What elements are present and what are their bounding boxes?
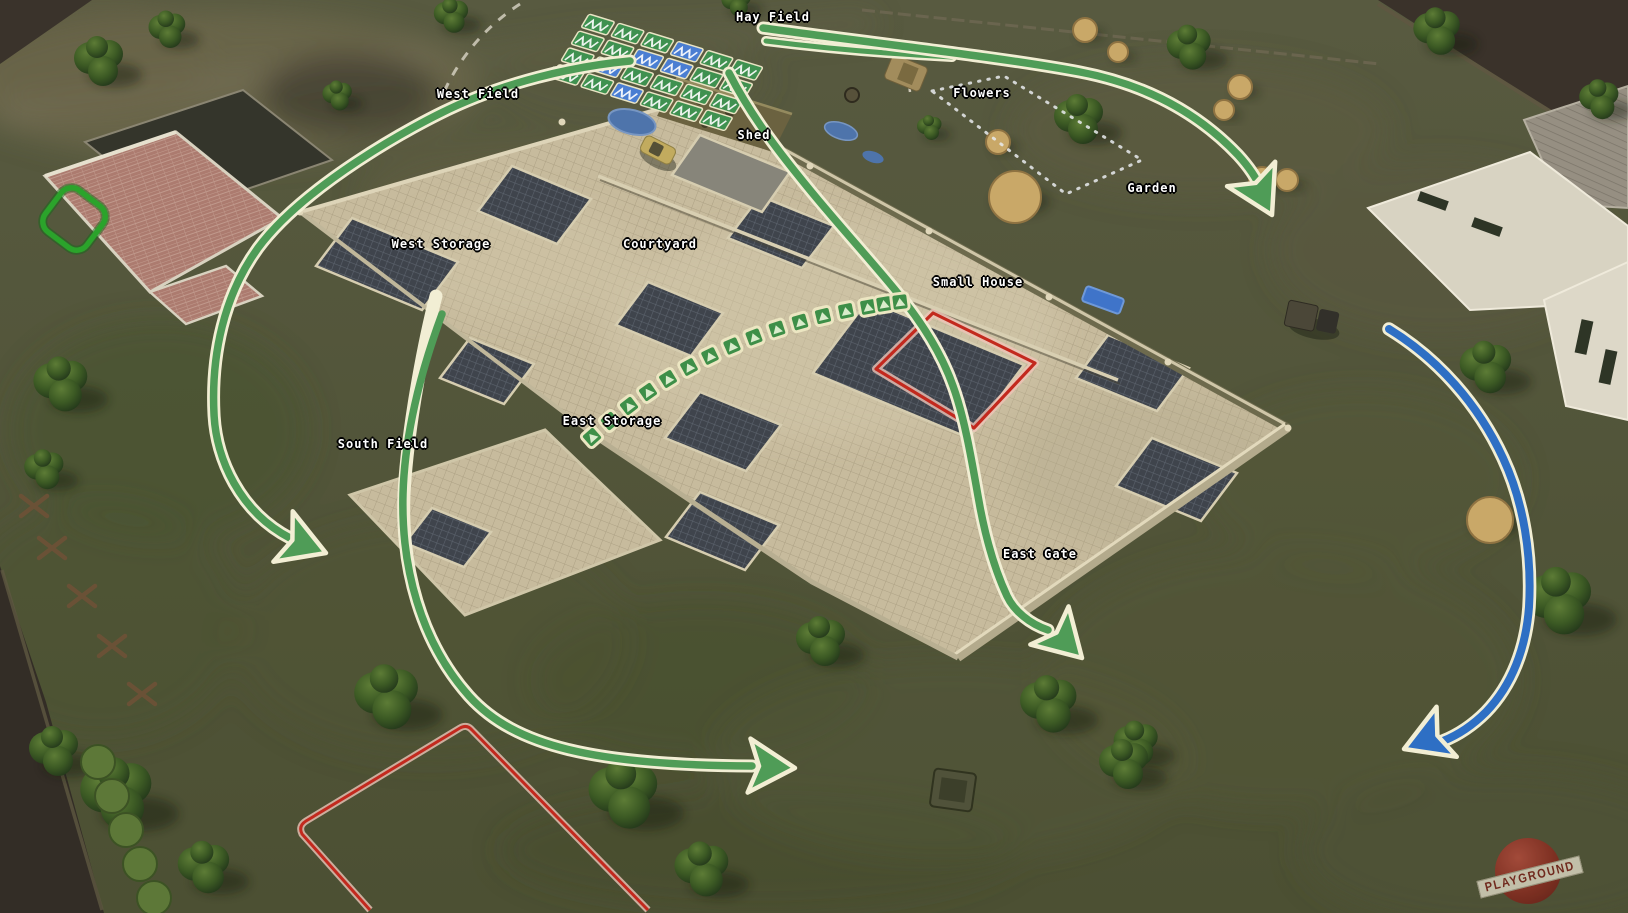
well <box>845 88 859 102</box>
map-scene <box>0 0 1628 913</box>
map-canvas[interactable]: Hay FieldWest FieldFlowersShedGardenWest… <box>0 0 1628 913</box>
playground-watermark: PLAYGROUND <box>1495 838 1565 908</box>
supply-truck <box>930 768 977 811</box>
